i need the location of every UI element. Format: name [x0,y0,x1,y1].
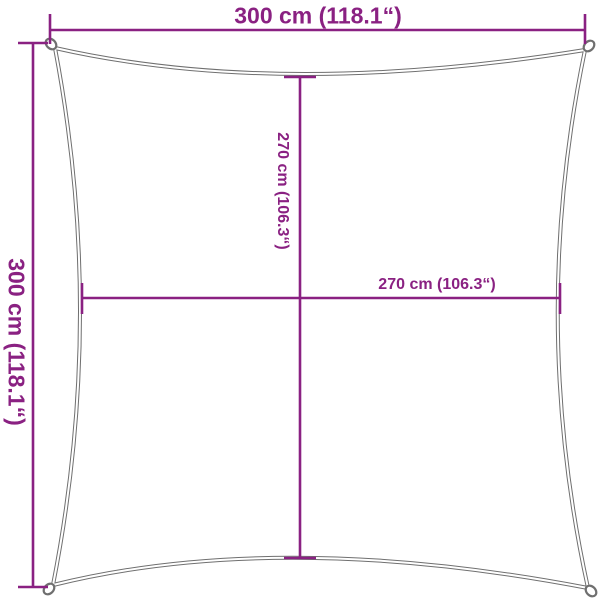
sail-diagram-svg [0,0,600,600]
sail-edge-bottom [53,558,588,588]
outer-width-label: 300 cm (118.1“) [234,5,402,28]
inner-height-label: 270 cm (106.3“) [274,132,290,249]
inner-width-label: 270 cm (106.3“) [378,277,495,293]
shade-sail-outline [42,37,599,599]
outer-height-label: 300 cm (118.1“) [5,258,28,426]
sail-edge-right-inner [558,50,588,588]
dimension-diagram: 300 cm (118.1“) 300 cm (118.1“) 270 cm (… [0,0,600,600]
